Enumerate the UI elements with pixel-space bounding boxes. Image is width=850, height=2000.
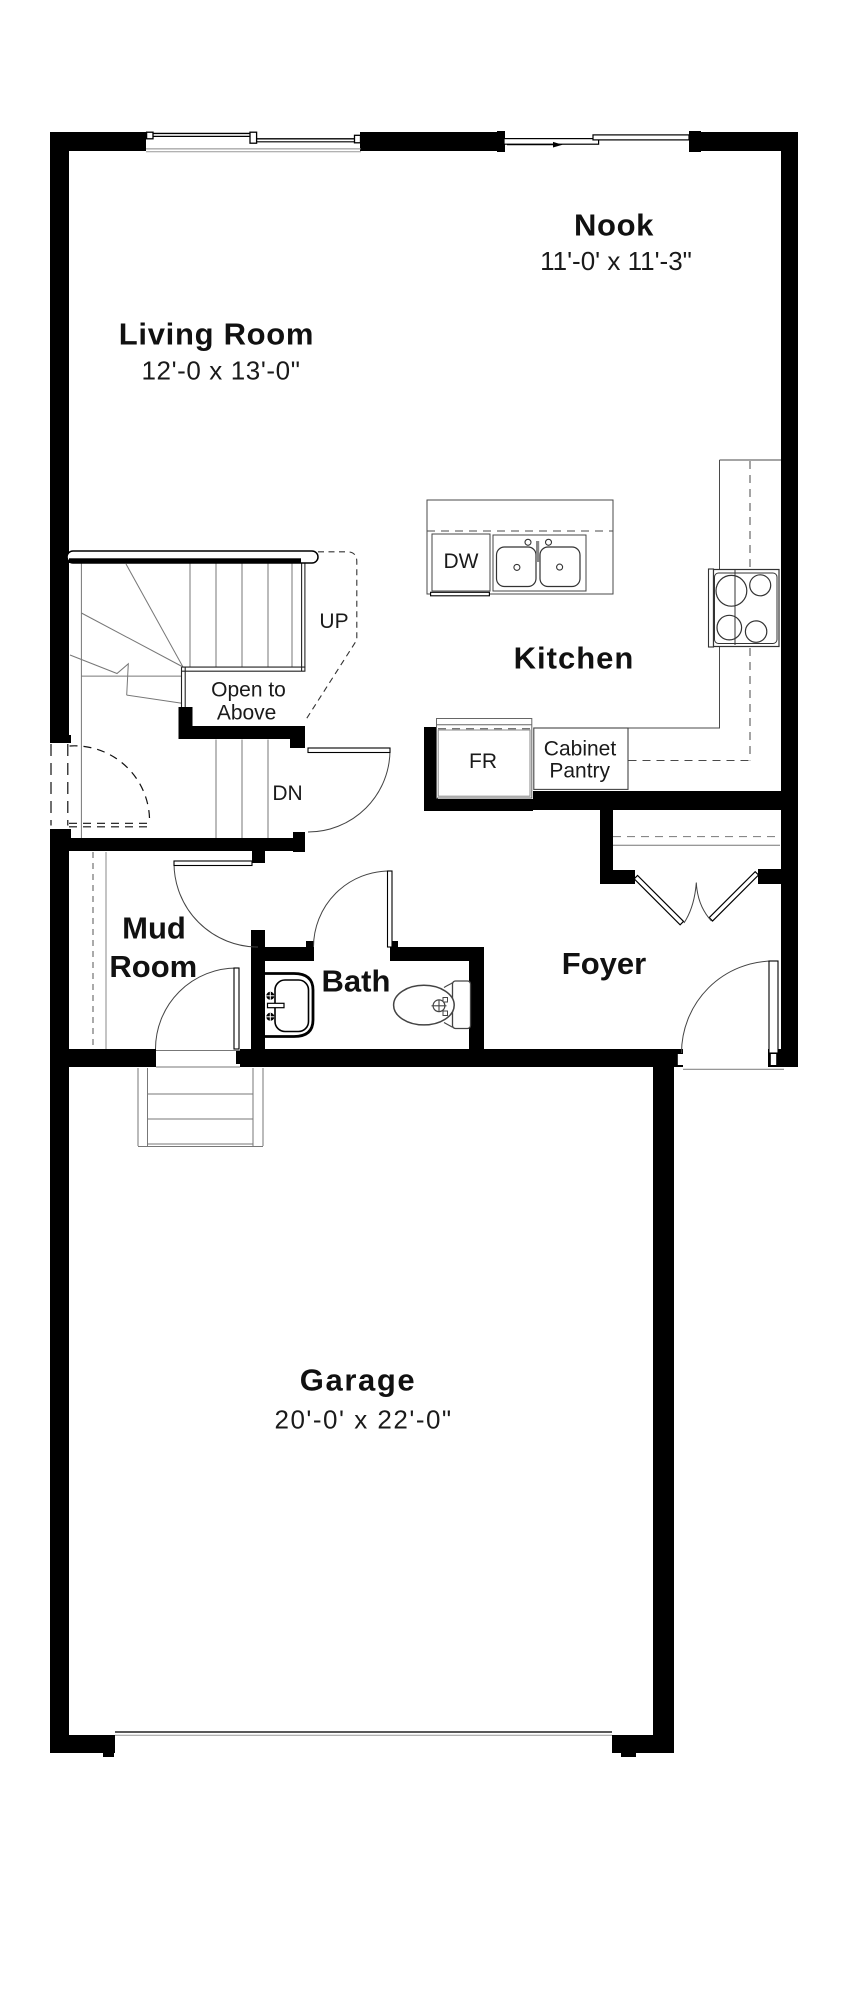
svg-text:Garage: Garage — [300, 1363, 416, 1398]
svg-text:11'-0' x 11'-3": 11'-0' x 11'-3" — [540, 246, 692, 276]
svg-text:Cabinet: Cabinet — [544, 738, 617, 761]
svg-text:Bath: Bath — [322, 964, 391, 999]
svg-text:DW: DW — [444, 550, 479, 573]
svg-text:Nook: Nook — [574, 208, 654, 243]
svg-text:12'-0 x 13'-0": 12'-0 x 13'-0" — [141, 356, 300, 386]
svg-text:Above: Above — [217, 702, 277, 725]
svg-text:Pantry: Pantry — [549, 760, 610, 783]
svg-text:Room: Room — [109, 949, 197, 984]
svg-text:FR: FR — [469, 750, 497, 773]
svg-text:Living Room: Living Room — [119, 317, 314, 352]
svg-text:Foyer: Foyer — [562, 946, 646, 981]
svg-text:DN: DN — [272, 782, 302, 805]
svg-text:Kitchen: Kitchen — [514, 641, 635, 676]
svg-text:UP: UP — [319, 610, 348, 633]
svg-text:Open to: Open to — [211, 679, 286, 702]
svg-text:Mud: Mud — [122, 911, 186, 946]
svg-text:20'-0' x 22'-0": 20'-0' x 22'-0" — [275, 1405, 453, 1435]
